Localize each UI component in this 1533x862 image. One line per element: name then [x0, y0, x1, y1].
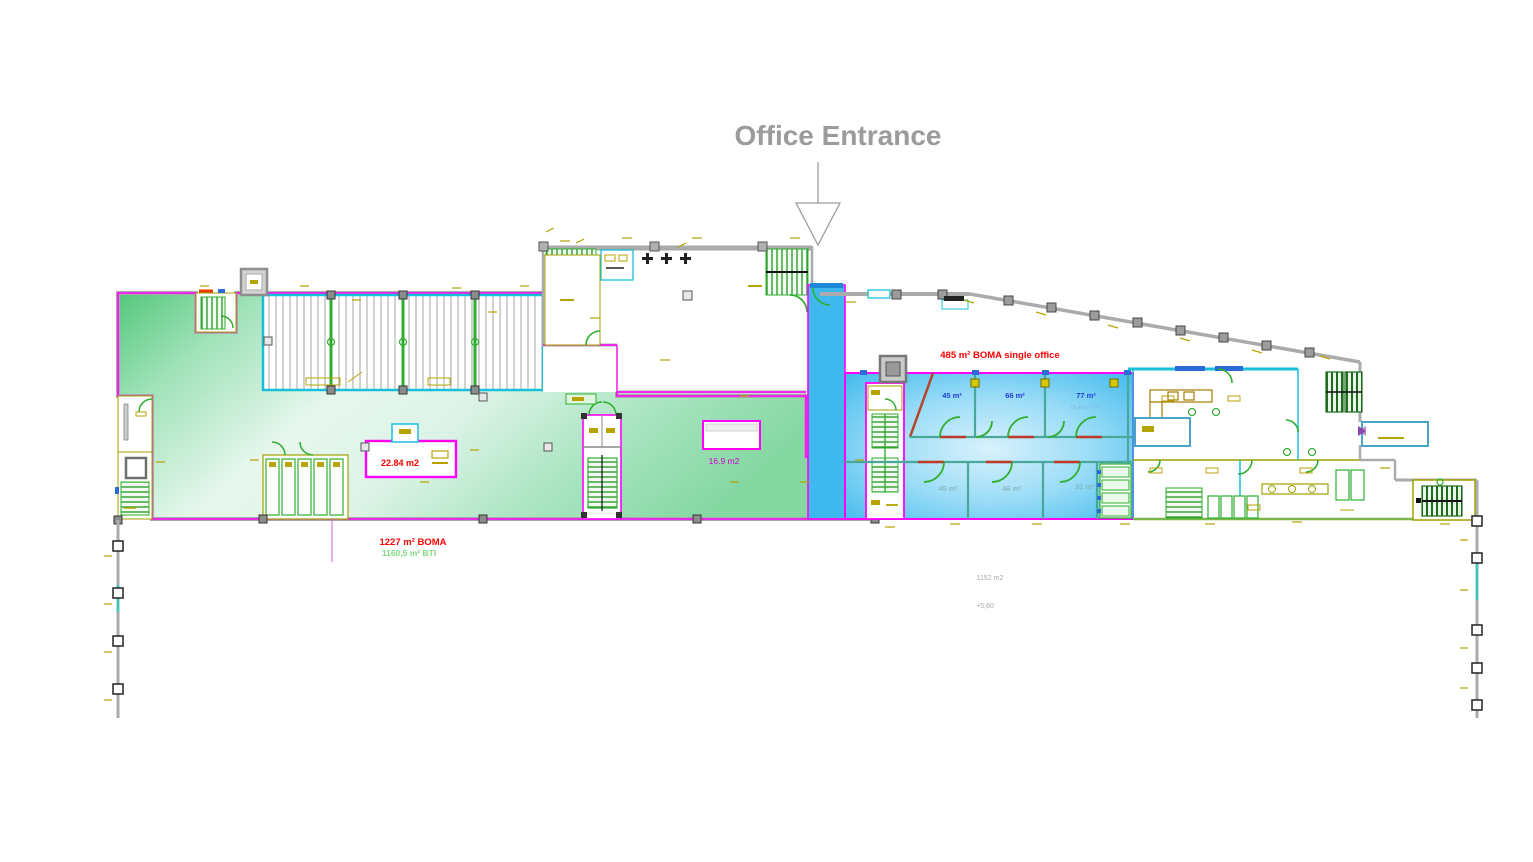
page-title: Office Entrance	[735, 120, 942, 151]
label-room-45: 45 m²	[942, 391, 962, 400]
label-room-77-sub: 73,48 m² BTI	[1070, 405, 1102, 411]
label-room-66: 66 m²	[1005, 391, 1025, 400]
lobby-inner-room	[545, 255, 600, 345]
label-room-16-9: 16.9 m2	[709, 456, 740, 466]
right-protrusion	[1358, 422, 1428, 446]
label-room-46: 46 m²	[1002, 484, 1022, 493]
label-level-note: +5,60	[976, 603, 994, 610]
entrance-door	[810, 283, 843, 288]
left-service-rooms	[115, 396, 152, 519]
roof-access-box	[241, 269, 267, 295]
stair-top-left	[196, 289, 236, 332]
stairwell-blue-left	[866, 383, 904, 519]
vent-box	[942, 296, 968, 309]
large-column	[880, 356, 906, 382]
label-area-note: 1152 m2	[977, 575, 1004, 582]
lobby-service-box	[601, 250, 633, 280]
room-16-9-box	[703, 421, 760, 449]
skylight-strip	[263, 291, 543, 394]
floor-plan-canvas: Office Entrance	[0, 0, 1533, 862]
label-left-boma: 1227 m² BOMA	[379, 537, 446, 548]
wc-stalls-blue	[1097, 464, 1131, 518]
label-room-77: 77 m²	[1076, 391, 1096, 400]
stair-left	[121, 482, 149, 515]
label-room-45b: 45 m²	[938, 484, 958, 493]
label-single-office: 485 m² BOMA single office	[940, 350, 1059, 361]
label-room-22-84: 22.84 m2	[381, 458, 419, 468]
entrance-callout: Office Entrance	[735, 120, 942, 245]
entrance-arrow-icon	[796, 162, 840, 245]
stair-bottom-right	[1413, 479, 1475, 520]
display-box-right	[1135, 418, 1190, 446]
person-markers	[1189, 409, 1316, 456]
right-section	[1128, 366, 1477, 520]
label-left-bti: 1160,5 m² BTI	[382, 548, 436, 558]
stair-top-right	[1326, 372, 1362, 412]
entrance-lobby	[539, 242, 812, 396]
label-room-31: 31 m²	[1075, 482, 1095, 491]
entrance-corridor	[808, 283, 845, 519]
wc-cluster-right	[1166, 470, 1364, 518]
elevator-shaft	[126, 458, 146, 478]
radiator	[124, 404, 128, 440]
